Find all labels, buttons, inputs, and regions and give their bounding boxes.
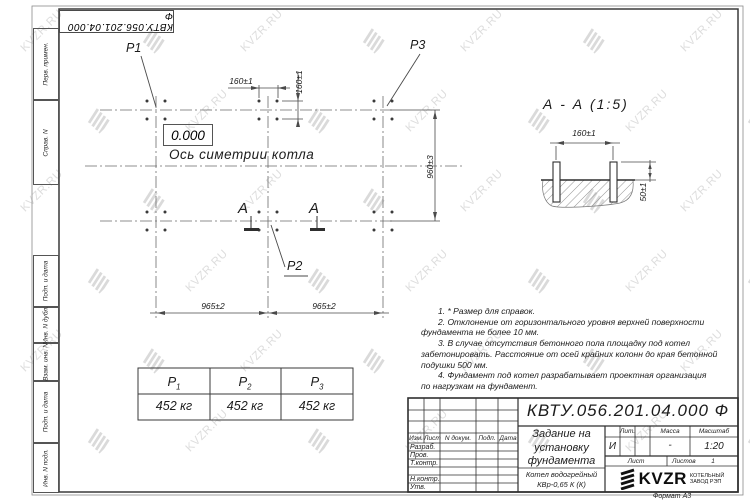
row-razrab: Разраб.	[410, 444, 435, 451]
top-stamp-text: КВТУ.056.201.04.000 Ф	[60, 10, 173, 32]
scale-label: Масштаб	[690, 428, 738, 435]
load-table-header-3: P3	[287, 374, 347, 392]
point-label-p1: P1	[126, 41, 141, 55]
format-note: Формат А3	[632, 493, 712, 500]
dim-top-160: 160±1	[222, 76, 260, 86]
dim-right-960: 960±3	[425, 145, 435, 189]
point-label-p3: P3	[410, 38, 425, 52]
scale-value: 1:20	[690, 441, 738, 452]
lit-label: Лит.	[605, 428, 650, 435]
col-ndokum: N докум.	[440, 435, 476, 442]
section-cut-marks	[244, 216, 325, 230]
lit-value: И	[605, 441, 620, 452]
sidebar-item-inv-dubl: Инв. N дубл.	[33, 307, 59, 343]
plan-leaders	[141, 54, 420, 276]
sheets-label: Листов	[672, 458, 696, 465]
drawing-sheet: KVZR.RUKVZR.RUKVZR.RUKVZR.RUKVZR.RUKVZR.…	[0, 0, 750, 500]
sidebar-item-inv-podl: Инв. N подл.	[33, 443, 59, 493]
load-table-value-1: 452 кг	[144, 399, 204, 413]
plan-dimensions	[150, 72, 440, 315]
sheet-label: Лист	[605, 458, 667, 465]
section-letter-left: А	[238, 200, 248, 217]
sidebar-item-sprav-n: Справ. N	[33, 100, 59, 185]
mass-label: Масса	[650, 428, 690, 435]
col-data: Дата	[498, 435, 518, 442]
dim-bottom-965-right: 965±2	[299, 301, 349, 311]
note-line: 3. В случае отсутствия бетонного пола пл…	[421, 338, 743, 349]
note-line: фундамента не более 10 мм.	[421, 327, 743, 338]
kvzr-spring-icon	[619, 468, 636, 490]
mass-value: -	[650, 440, 690, 451]
drawing-title: Задание на установку фундамента	[518, 428, 605, 469]
sheet-frame	[32, 6, 743, 495]
plan-anchor-bolts	[146, 100, 394, 232]
note-line: 2. Отклонение от горизонтального уровня …	[421, 317, 743, 328]
col-list: Лист	[424, 435, 440, 442]
company-logo: KVZR КОТЕЛЬНЫЙ ЗАВОД РЭП	[606, 466, 737, 492]
load-table-value-2: 452 кг	[215, 399, 275, 413]
note-line: 4. Фундамент под котел разрабатывает про…	[421, 370, 743, 381]
logo-text: KVZR	[639, 469, 687, 489]
section-letter-right: А	[309, 200, 319, 217]
row-prov: Пров.	[410, 452, 428, 459]
notes: 1. * Размер для справок. 2. Отклонение о…	[421, 306, 743, 392]
dim-section-50: 50±1	[638, 172, 648, 212]
col-podp: Подп.	[476, 435, 498, 442]
note-line: подушки 500 мм.	[421, 360, 743, 371]
load-table-header-1: P1	[144, 374, 204, 392]
logo-subtitle: КОТЕЛЬНЫЙ ЗАВОД РЭП	[690, 473, 724, 486]
load-table-header-2: P2	[215, 374, 275, 392]
plan-centerlines	[85, 96, 462, 318]
note-line: забетонировать. Расстояние от осей крайн…	[421, 349, 743, 360]
sheets-value: 1	[698, 458, 728, 465]
row-tkontr: Т.контр.	[410, 460, 438, 467]
drawing-linework	[0, 0, 750, 500]
boiler-axis-label: Ось симетрии котла	[169, 147, 314, 162]
note-line: по нагрузкам на фундамент.	[421, 381, 743, 392]
sidebar-item-perv-primen: Перв. примен.	[33, 28, 59, 100]
dim-bottom-965-left: 965±2	[188, 301, 238, 311]
sidebar-item-vzam-inv: Взам. инв. N	[33, 343, 59, 381]
top-stamp-box: КВТУ.056.201.04.000 Ф	[59, 10, 174, 33]
dim-side-160: 160±1	[294, 62, 304, 102]
sidebar-item-podp-data-1: Подп. и дата	[33, 255, 59, 307]
doc-number: КВТУ.056.201.04.000 Ф	[518, 401, 738, 421]
product-name: Котел водогрейный КВр-0,65 К (К)	[518, 470, 605, 489]
elevation-value: 0.000	[171, 128, 205, 143]
row-utv: Утв.	[410, 484, 426, 491]
sidebar-item-podp-data-2: Подп. и дата	[33, 381, 59, 443]
load-table-value-3: 452 кг	[287, 399, 347, 413]
note-line: 1. * Размер для справок.	[421, 306, 743, 317]
dim-section-160: 160±1	[564, 128, 604, 138]
section-title: А - А (1:5)	[543, 96, 629, 112]
row-nkontr: Н.контр.	[410, 476, 440, 483]
point-label-p2: P2	[287, 259, 302, 273]
elevation-mark-box: 0.000	[163, 124, 213, 146]
col-izm: Изм.	[408, 435, 424, 442]
